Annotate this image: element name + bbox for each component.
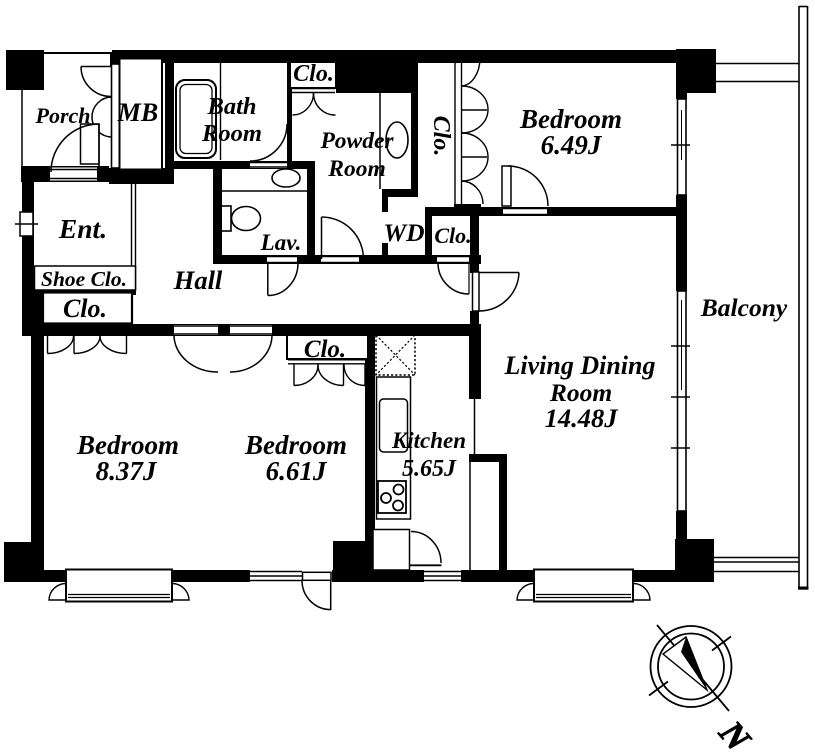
svg-text:WD: WD	[383, 218, 424, 247]
svg-text:Kitchen: Kitchen	[391, 428, 466, 453]
svg-text:Balcony: Balcony	[700, 293, 788, 322]
svg-text:8.37J: 8.37J	[96, 456, 158, 486]
svg-text:6.49J: 6.49J	[541, 130, 603, 160]
svg-text:Clo.: Clo.	[63, 294, 107, 323]
svg-text:14.48J: 14.48J	[545, 403, 619, 433]
svg-text:Living Dining: Living Dining	[504, 351, 656, 380]
svg-text:MB: MB	[117, 98, 158, 127]
svg-text:Room: Room	[201, 120, 262, 147]
svg-text:Clo.: Clo.	[434, 223, 471, 248]
svg-text:Powder: Powder	[319, 128, 394, 154]
svg-text:Clo.: Clo.	[293, 61, 334, 87]
svg-text:Bath: Bath	[206, 93, 256, 120]
svg-text:Shoe Clo.: Shoe Clo.	[41, 267, 127, 291]
svg-text:6.61J: 6.61J	[266, 456, 328, 486]
svg-text:Clo.: Clo.	[428, 116, 454, 157]
svg-text:Room: Room	[327, 156, 385, 182]
svg-text:Porch: Porch	[35, 103, 91, 128]
svg-text:Clo.: Clo.	[304, 336, 346, 363]
svg-text:5.65J: 5.65J	[402, 456, 457, 482]
svg-text:Ent.: Ent.	[58, 213, 107, 244]
svg-text:Hall: Hall	[173, 265, 223, 295]
svg-text:Lav.: Lav.	[260, 230, 302, 255]
